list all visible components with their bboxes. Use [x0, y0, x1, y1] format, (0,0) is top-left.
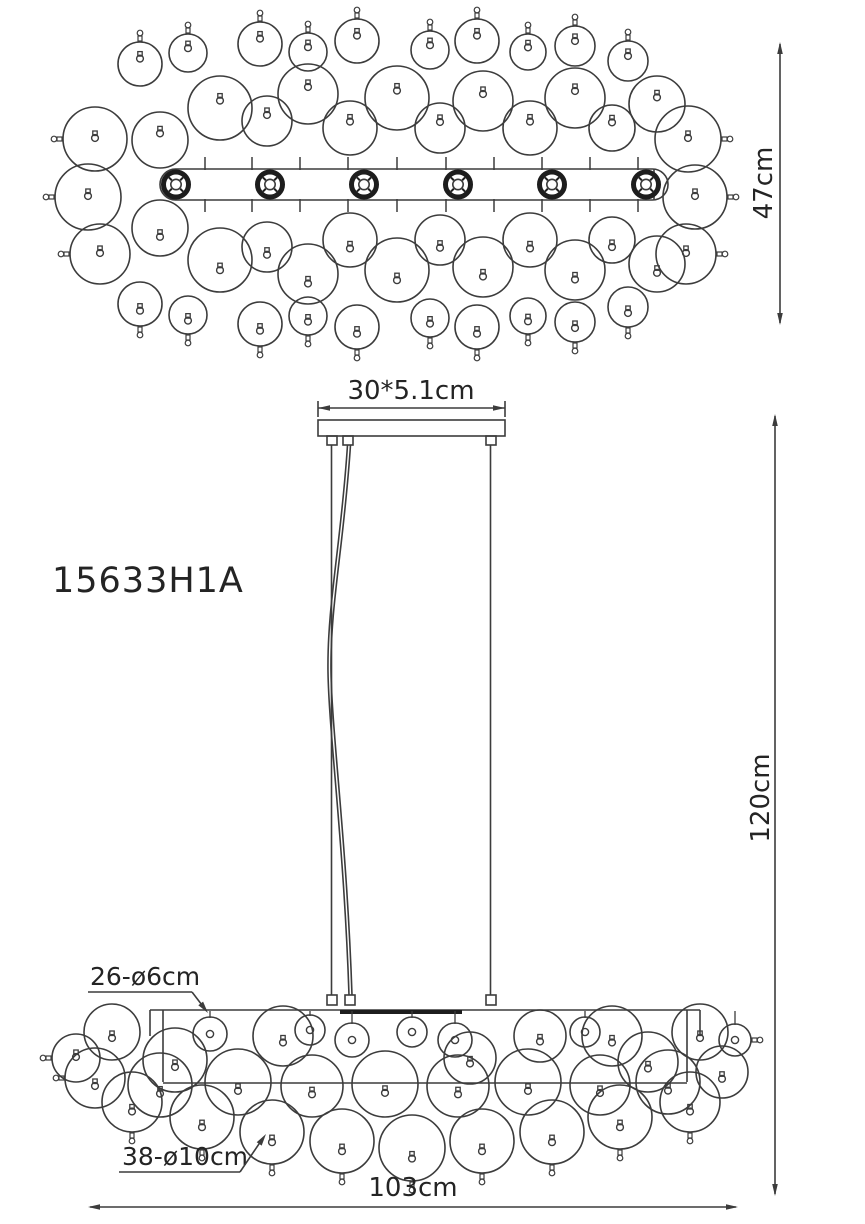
glass-disc: [310, 1109, 374, 1185]
glass-disc-outline: [278, 64, 338, 124]
glass-disc: [655, 106, 733, 172]
dimension-120cm: 120cm: [746, 414, 778, 1196]
arrow-up-icon: [777, 42, 783, 54]
canopy: [318, 420, 505, 445]
glass-disc-outline: [278, 244, 338, 304]
glass-disc: [169, 22, 207, 72]
top-view-lamp-sockets: [164, 172, 659, 197]
glass-disc: [323, 213, 377, 267]
rim-pin-icon: [355, 350, 359, 355]
glass-disc-outline: [128, 1053, 192, 1117]
rim-pin-icon: [573, 343, 577, 348]
rim-pin-icon: [480, 1174, 484, 1179]
rim-pin-icon: [727, 136, 733, 142]
disc-hole-icon: [348, 1036, 355, 1043]
glass-disc-outline: [415, 215, 465, 265]
glass-disc-outline: [656, 224, 716, 284]
glass-disc-outline: [281, 1055, 343, 1117]
dimension-103cm: 103cm: [88, 1173, 738, 1210]
rim-pin-icon: [53, 1075, 59, 1081]
glass-disc-outline: [188, 228, 252, 292]
rim-pin-icon: [752, 1038, 757, 1042]
glass-disc-outline: [323, 213, 377, 267]
rim-pin-icon: [617, 1155, 623, 1161]
rim-pin-icon: [40, 1055, 46, 1061]
rim-pin-icon: [572, 14, 578, 20]
glass-disc: [335, 305, 379, 361]
glass-disc-outline: [188, 76, 252, 140]
canopy-size-label: 30*5.1cm: [347, 376, 474, 406]
glass-disc: [193, 1017, 227, 1051]
glass-disc: [545, 240, 605, 300]
rim-pin-icon: [51, 136, 57, 142]
lamp-socket-icon: [164, 172, 189, 197]
rim-pin-icon: [57, 137, 62, 141]
cable-gripper: [327, 436, 337, 445]
glass-disc: [278, 244, 338, 304]
rim-pin-icon: [573, 20, 577, 25]
glass-disc: [608, 29, 648, 81]
glass-disc: [397, 1017, 427, 1047]
rim-pin-icon: [427, 19, 433, 25]
glass-disc-outline: [52, 1034, 100, 1082]
rim-pin-icon: [58, 251, 64, 257]
glass-disc: [58, 224, 130, 284]
rim-pin-icon: [733, 194, 739, 200]
glass-disc-outline: [379, 1115, 445, 1181]
rim-pin-icon: [339, 1179, 345, 1185]
glass-disc-outline: [63, 107, 127, 171]
cable-connector: [486, 995, 496, 1005]
drop-height-label: 120cm: [746, 753, 776, 842]
canopy-dimension: 30*5.1cm: [318, 376, 505, 417]
rim-pin-icon: [185, 340, 191, 346]
rim-pin-icon: [525, 22, 531, 28]
glass-disc: [43, 164, 121, 230]
top-view-mounting-bar: [160, 169, 668, 200]
rim-pin-icon: [269, 1170, 275, 1176]
rim-pin-icon: [46, 1056, 51, 1060]
glass-disc-outline: [660, 1072, 720, 1132]
glass-disc: [589, 217, 635, 263]
arrow-right-icon: [493, 405, 505, 410]
arrow-left-icon: [88, 1204, 100, 1209]
glass-disc: [132, 112, 188, 168]
glass-disc: [365, 66, 429, 130]
glass-disc-outline: [415, 103, 465, 153]
glass-disc: [589, 105, 635, 151]
disc-hole-icon: [731, 1036, 738, 1043]
glass-disc: [629, 76, 685, 132]
glass-disc: [719, 1024, 763, 1056]
glass-disc-outline: [238, 22, 282, 66]
glass-disc: [51, 107, 127, 171]
rim-pin-icon: [757, 1037, 763, 1043]
rim-pin-icon: [618, 1150, 622, 1155]
glass-disc-outline: [169, 296, 207, 334]
rim-pin-icon: [479, 1179, 485, 1185]
glass-disc: [411, 299, 449, 349]
cord-gripper: [343, 436, 353, 445]
rim-pin-icon: [306, 336, 310, 341]
glass-disc-outline: [365, 66, 429, 130]
glass-disc-outline: [510, 34, 546, 70]
rim-pin-icon: [428, 338, 432, 343]
rim-pin-icon: [186, 335, 190, 340]
rim-pin-icon: [722, 251, 728, 257]
rim-pin-icon: [258, 16, 262, 21]
suspension-cables: [327, 445, 496, 1005]
rim-pin-icon: [526, 335, 530, 340]
glass-disc: [323, 101, 377, 155]
glass-disc: [335, 1023, 369, 1057]
rim-pin-icon: [257, 10, 263, 16]
glass-disc: [411, 19, 449, 69]
glass-disc: [450, 1109, 514, 1185]
glass-disc-outline: [65, 1048, 125, 1108]
glass-disc: [132, 200, 188, 256]
glass-disc-outline: [132, 112, 188, 168]
glass-disc: [335, 7, 379, 63]
front-view-frame: [150, 1010, 700, 1083]
glass-disc-outline: [608, 287, 648, 327]
rim-pin-icon: [186, 28, 190, 33]
arrow-down-icon: [772, 1184, 778, 1196]
glass-disc-outline: [655, 106, 721, 172]
rim-pin-icon: [427, 343, 433, 349]
rim-pin-icon: [270, 1165, 274, 1170]
rim-pin-icon: [340, 1174, 344, 1179]
glass-disc: [545, 68, 605, 128]
glass-disc-outline: [132, 200, 188, 256]
rim-pin-icon: [728, 195, 733, 199]
rim-pin-icon: [258, 347, 262, 352]
label-large-discs: 38-ø10cm: [119, 1134, 266, 1172]
glass-disc: [188, 76, 252, 140]
glass-disc: [656, 224, 728, 284]
glass-disc: [608, 287, 648, 339]
dimension-47cm: 47cm: [749, 42, 783, 325]
rim-pin-icon: [550, 1165, 554, 1170]
lamp-socket-icon: [446, 172, 471, 197]
rim-pin-icon: [475, 350, 479, 355]
rim-pin-icon: [257, 352, 263, 358]
power-cord: [331, 445, 352, 995]
glass-disc-outline: [55, 164, 121, 230]
lamp-socket-icon: [634, 172, 659, 197]
rim-pin-icon: [130, 1133, 134, 1138]
rim-pin-icon: [137, 30, 143, 36]
rim-pin-icon: [306, 27, 310, 32]
rim-pin-icon: [549, 1170, 555, 1176]
rim-pin-icon: [305, 21, 311, 27]
glass-disc: [427, 1055, 489, 1117]
glass-disc: [40, 1034, 100, 1082]
glass-disc: [503, 101, 557, 155]
glass-disc-outline: [84, 1004, 140, 1060]
glass-disc-outline: [205, 1049, 271, 1115]
rim-pin-icon: [475, 13, 479, 18]
glass-disc-outline: [545, 240, 605, 300]
chandelier-technical-drawing: 47cm 30*5.1cm 15633H1A: [0, 0, 865, 1224]
glass-disc-outline: [503, 213, 557, 267]
glass-disc: [588, 1085, 652, 1161]
cord-connector: [345, 995, 355, 1005]
glass-disc: [238, 302, 282, 358]
glass-disc-outline: [397, 1017, 427, 1047]
small-disc-spec: 26-ø6cm: [90, 962, 200, 991]
rim-pin-icon: [185, 22, 191, 28]
glass-disc: [455, 7, 499, 63]
glass-disc: [415, 215, 465, 265]
rim-pin-icon: [625, 333, 631, 339]
glass-disc: [281, 1055, 343, 1117]
glass-disc-outline: [193, 1017, 227, 1051]
rim-pin-icon: [474, 7, 480, 13]
glass-disc: [278, 64, 338, 124]
top-view-height-label: 47cm: [749, 147, 779, 220]
drawing-page: 47cm 30*5.1cm 15633H1A: [0, 0, 865, 1224]
glass-disc: [438, 1023, 472, 1057]
rim-pin-icon: [722, 137, 727, 141]
large-disc-spec: 38-ø10cm: [122, 1142, 248, 1171]
glass-disc-outline: [450, 1109, 514, 1173]
lamp-socket-icon: [540, 172, 565, 197]
rim-pin-icon: [354, 7, 360, 13]
rim-pin-icon: [355, 13, 359, 18]
glass-disc-outline: [663, 165, 727, 229]
glass-disc-outline: [170, 1085, 234, 1149]
rim-pin-icon: [526, 28, 530, 33]
glass-disc-outline: [514, 1010, 566, 1062]
rim-pin-icon: [428, 25, 432, 30]
glass-disc-outline: [70, 224, 130, 284]
glass-disc-outline: [295, 1015, 325, 1045]
glass-disc: [503, 213, 557, 267]
glass-disc-outline: [555, 26, 595, 66]
glass-disc: [128, 1053, 192, 1117]
glass-disc-outline: [719, 1024, 751, 1056]
glass-disc: [510, 298, 546, 346]
glass-disc-outline: [411, 299, 449, 337]
disc-hole-icon: [206, 1030, 213, 1037]
rim-pin-icon: [138, 327, 142, 332]
glass-disc-outline: [411, 31, 449, 69]
disc-hole-icon: [408, 1028, 415, 1035]
glass-disc-outline: [118, 42, 162, 86]
glass-disc: [118, 30, 162, 86]
rim-pin-icon: [138, 36, 142, 41]
rim-pin-icon: [137, 332, 143, 338]
rim-pin-icon: [43, 194, 49, 200]
glass-disc-outline: [289, 297, 327, 335]
glass-disc: [365, 238, 429, 302]
arrow-up-icon: [772, 414, 778, 426]
glass-disc: [520, 1100, 584, 1176]
glass-disc-outline: [323, 101, 377, 155]
rim-pin-icon: [717, 252, 722, 256]
cable-gripper: [486, 436, 496, 445]
glass-disc-outline: [240, 1100, 304, 1164]
glass-disc: [253, 1006, 313, 1066]
glass-disc-outline: [555, 302, 595, 342]
glass-disc-outline: [510, 298, 546, 334]
glass-disc-outline: [438, 1023, 472, 1057]
glass-disc: [295, 1015, 325, 1045]
glass-disc: [415, 103, 465, 153]
rim-pin-icon: [64, 252, 69, 256]
rim-pin-icon: [525, 340, 531, 346]
glass-disc-outline: [352, 1051, 418, 1117]
body-width-label: 103cm: [368, 1173, 457, 1203]
rim-pin-icon: [474, 355, 480, 361]
glass-disc: [188, 228, 252, 292]
rim-pin-icon: [687, 1138, 693, 1144]
glass-disc-outline: [289, 33, 327, 71]
glass-disc: [555, 14, 595, 66]
glass-disc-outline: [455, 19, 499, 63]
lamp-socket-icon: [352, 172, 377, 197]
glass-disc: [205, 1049, 271, 1115]
glass-disc: [696, 1046, 748, 1098]
glass-disc-outline: [608, 41, 648, 81]
rim-pin-icon: [49, 195, 54, 199]
glass-disc-outline: [169, 34, 207, 72]
glass-disc-outline: [520, 1100, 584, 1164]
glass-disc-outline: [427, 1055, 489, 1117]
model-number: 15633H1A: [52, 561, 244, 601]
arrow-right-icon: [726, 1204, 738, 1209]
rim-pin-icon: [572, 348, 578, 354]
glass-disc: [169, 296, 207, 346]
glass-disc-outline: [310, 1109, 374, 1173]
arrow-down-icon: [777, 313, 783, 325]
glass-disc-outline: [335, 19, 379, 63]
rim-pin-icon: [625, 29, 631, 35]
glass-disc: [663, 165, 739, 229]
glass-disc: [118, 282, 162, 338]
cable-connector: [327, 995, 337, 1005]
glass-disc-outline: [503, 101, 557, 155]
glass-disc-outline: [589, 105, 635, 151]
glass-disc: [84, 1004, 140, 1060]
glass-disc: [352, 1051, 418, 1117]
arrow-left-icon: [318, 405, 330, 410]
rim-pin-icon: [305, 341, 311, 347]
glass-disc-outline: [335, 1023, 369, 1057]
glass-disc-outline: [365, 238, 429, 302]
glass-disc-outline: [629, 76, 685, 132]
glass-disc: [514, 1010, 566, 1062]
lamp-socket-icon: [258, 172, 283, 197]
rim-pin-icon: [354, 355, 360, 361]
leader-arrow-icon: [257, 1134, 266, 1146]
glass-disc-outline: [545, 68, 605, 128]
rim-pin-icon: [626, 35, 630, 40]
rim-pin-icon: [626, 328, 630, 333]
glass-disc: [555, 302, 595, 354]
glass-disc: [238, 10, 282, 66]
rim-pin-icon: [688, 1133, 692, 1138]
glass-disc-outline: [588, 1085, 652, 1149]
glass-disc: [510, 22, 546, 70]
glass-disc: [455, 305, 499, 361]
